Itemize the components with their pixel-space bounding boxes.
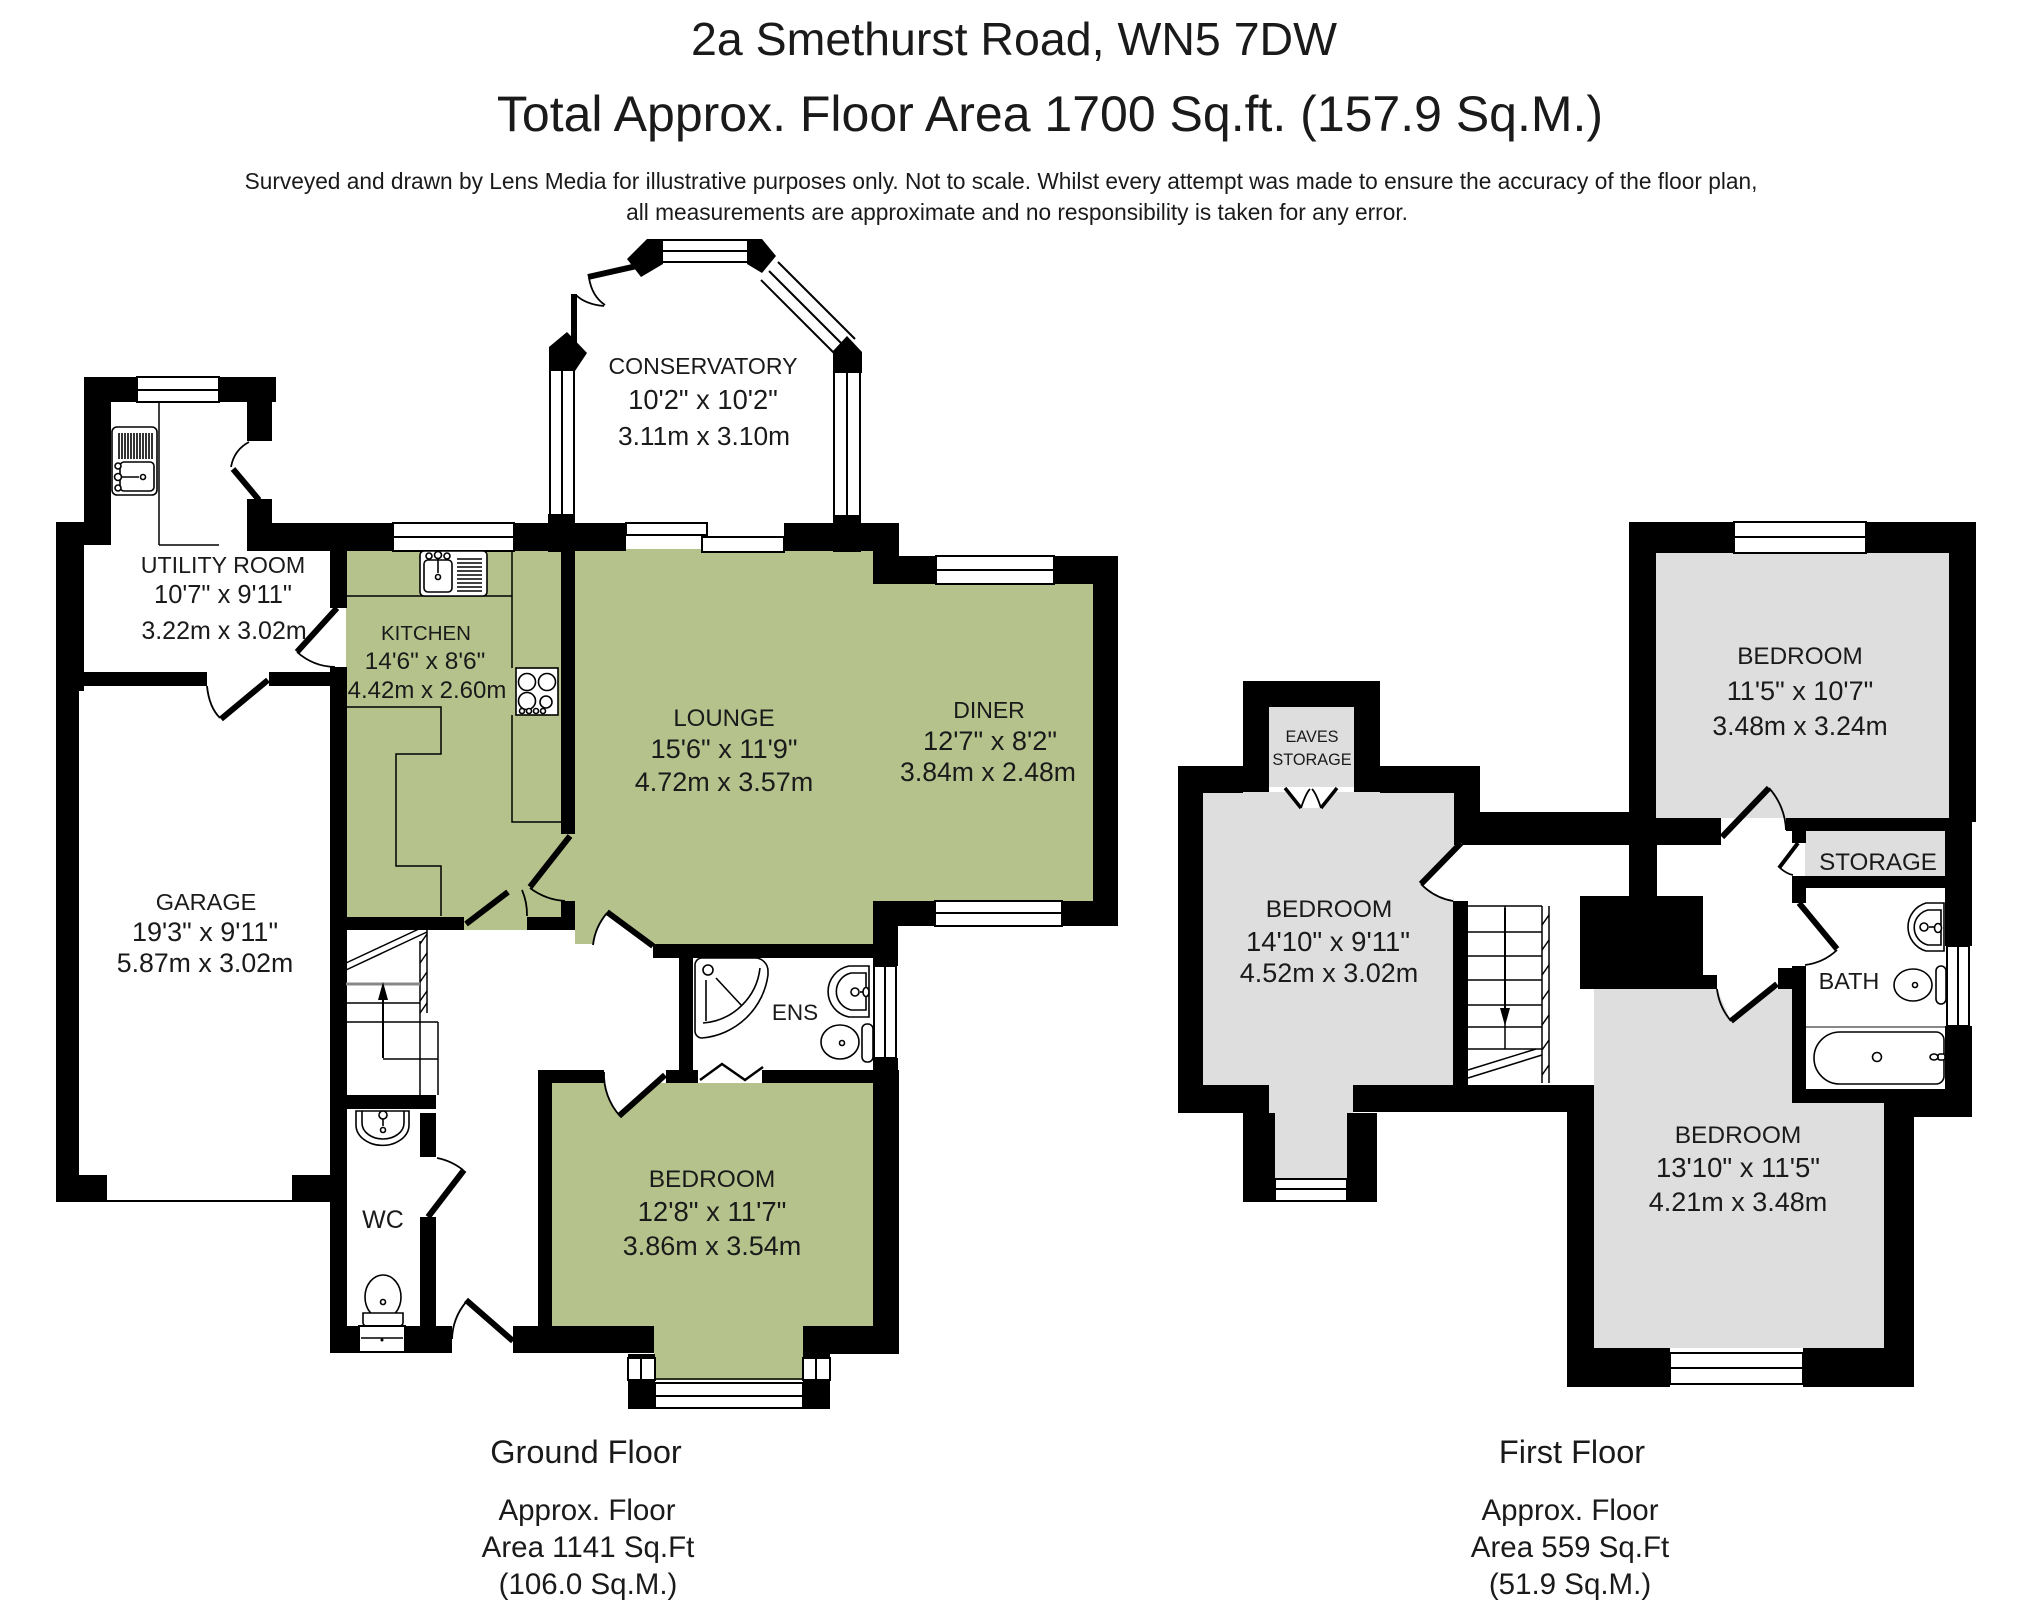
- svg-text:12'7" x 8'2": 12'7" x 8'2": [923, 725, 1057, 756]
- svg-text:BEDROOM: BEDROOM: [1266, 896, 1393, 923]
- svg-text:(106.0 Sq.M.): (106.0 Sq.M.): [499, 1568, 678, 1601]
- svg-text:BEDROOM: BEDROOM: [1675, 1122, 1802, 1149]
- svg-text:5.87m x 3.02m: 5.87m x 3.02m: [117, 948, 294, 978]
- svg-text:13'10" x 11'5": 13'10" x 11'5": [1656, 1152, 1820, 1183]
- svg-text:3.84m x 2.48m: 3.84m x 2.48m: [900, 757, 1076, 787]
- svg-text:2a Smethurst Road, WN5 7DW: 2a Smethurst Road, WN5 7DW: [691, 13, 1337, 65]
- svg-text:(51.9 Sq.M.): (51.9 Sq.M.): [1489, 1568, 1651, 1601]
- svg-text:10'2" x 10'2": 10'2" x 10'2": [628, 384, 778, 415]
- svg-text:Area 559 Sq.Ft: Area 559 Sq.Ft: [1471, 1531, 1669, 1564]
- svg-text:all measurements are approxima: all measurements are approximate and no …: [626, 199, 1408, 225]
- svg-text:GARAGE: GARAGE: [156, 889, 257, 915]
- svg-text:4.52m x 3.02m: 4.52m x 3.02m: [1240, 958, 1419, 988]
- svg-text:4.42m x 2.60m: 4.42m x 2.60m: [348, 677, 507, 704]
- svg-text:3.86m x 3.54m: 3.86m x 3.54m: [623, 1231, 802, 1261]
- svg-text:KITCHEN: KITCHEN: [381, 622, 471, 645]
- svg-text:Approx. Floor: Approx. Floor: [498, 1494, 675, 1527]
- svg-text:3.11m x 3.10m: 3.11m x 3.10m: [618, 421, 790, 451]
- svg-text:19'3" x 9'11": 19'3" x 9'11": [132, 917, 278, 947]
- svg-text:DINER: DINER: [953, 697, 1025, 723]
- svg-text:STORAGE: STORAGE: [1272, 751, 1351, 769]
- svg-text:EAVES: EAVES: [1285, 728, 1338, 746]
- svg-text:15'6" x 11'9": 15'6" x 11'9": [650, 733, 797, 764]
- svg-text:14'10" x 9'11": 14'10" x 9'11": [1246, 926, 1410, 957]
- svg-text:4.72m x 3.57m: 4.72m x 3.57m: [635, 767, 814, 797]
- svg-text:Total Approx. Floor Area 1700: Total Approx. Floor Area 1700 Sq.ft. (15…: [497, 86, 1603, 142]
- svg-text:Approx. Floor: Approx. Floor: [1481, 1494, 1658, 1527]
- svg-text:BEDROOM: BEDROOM: [649, 1166, 776, 1193]
- svg-text:STORAGE: STORAGE: [1819, 849, 1937, 876]
- svg-text:14'6" x 8'6": 14'6" x 8'6": [365, 648, 486, 675]
- svg-text:4.21m x 3.48m: 4.21m x 3.48m: [1649, 1187, 1828, 1217]
- svg-text:First Floor: First Floor: [1499, 1434, 1645, 1470]
- svg-text:LOUNGE: LOUNGE: [673, 705, 774, 732]
- svg-text:11'5" x 10'7": 11'5" x 10'7": [1727, 675, 1874, 706]
- svg-text:CONSERVATORY: CONSERVATORY: [608, 353, 797, 379]
- svg-text:3.48m x 3.24m: 3.48m x 3.24m: [1712, 711, 1887, 741]
- svg-text:ENS: ENS: [772, 1000, 818, 1025]
- svg-text:Ground Floor: Ground Floor: [490, 1434, 682, 1470]
- svg-text:Surveyed and drawn by Lens Med: Surveyed and drawn by Lens Media for ill…: [245, 168, 1758, 194]
- svg-text:12'8" x 11'7": 12'8" x 11'7": [638, 1196, 787, 1227]
- svg-text:3.22m x 3.02m: 3.22m x 3.02m: [141, 617, 306, 645]
- svg-text:WC: WC: [362, 1206, 404, 1234]
- svg-text:BEDROOM: BEDROOM: [1737, 643, 1863, 670]
- svg-text:Area 1141 Sq.Ft: Area 1141 Sq.Ft: [482, 1531, 695, 1564]
- svg-text:10'7" x 9'11": 10'7" x 9'11": [154, 581, 292, 609]
- svg-text:UTILITY ROOM: UTILITY ROOM: [141, 552, 305, 578]
- svg-text:BATH: BATH: [1819, 968, 1880, 994]
